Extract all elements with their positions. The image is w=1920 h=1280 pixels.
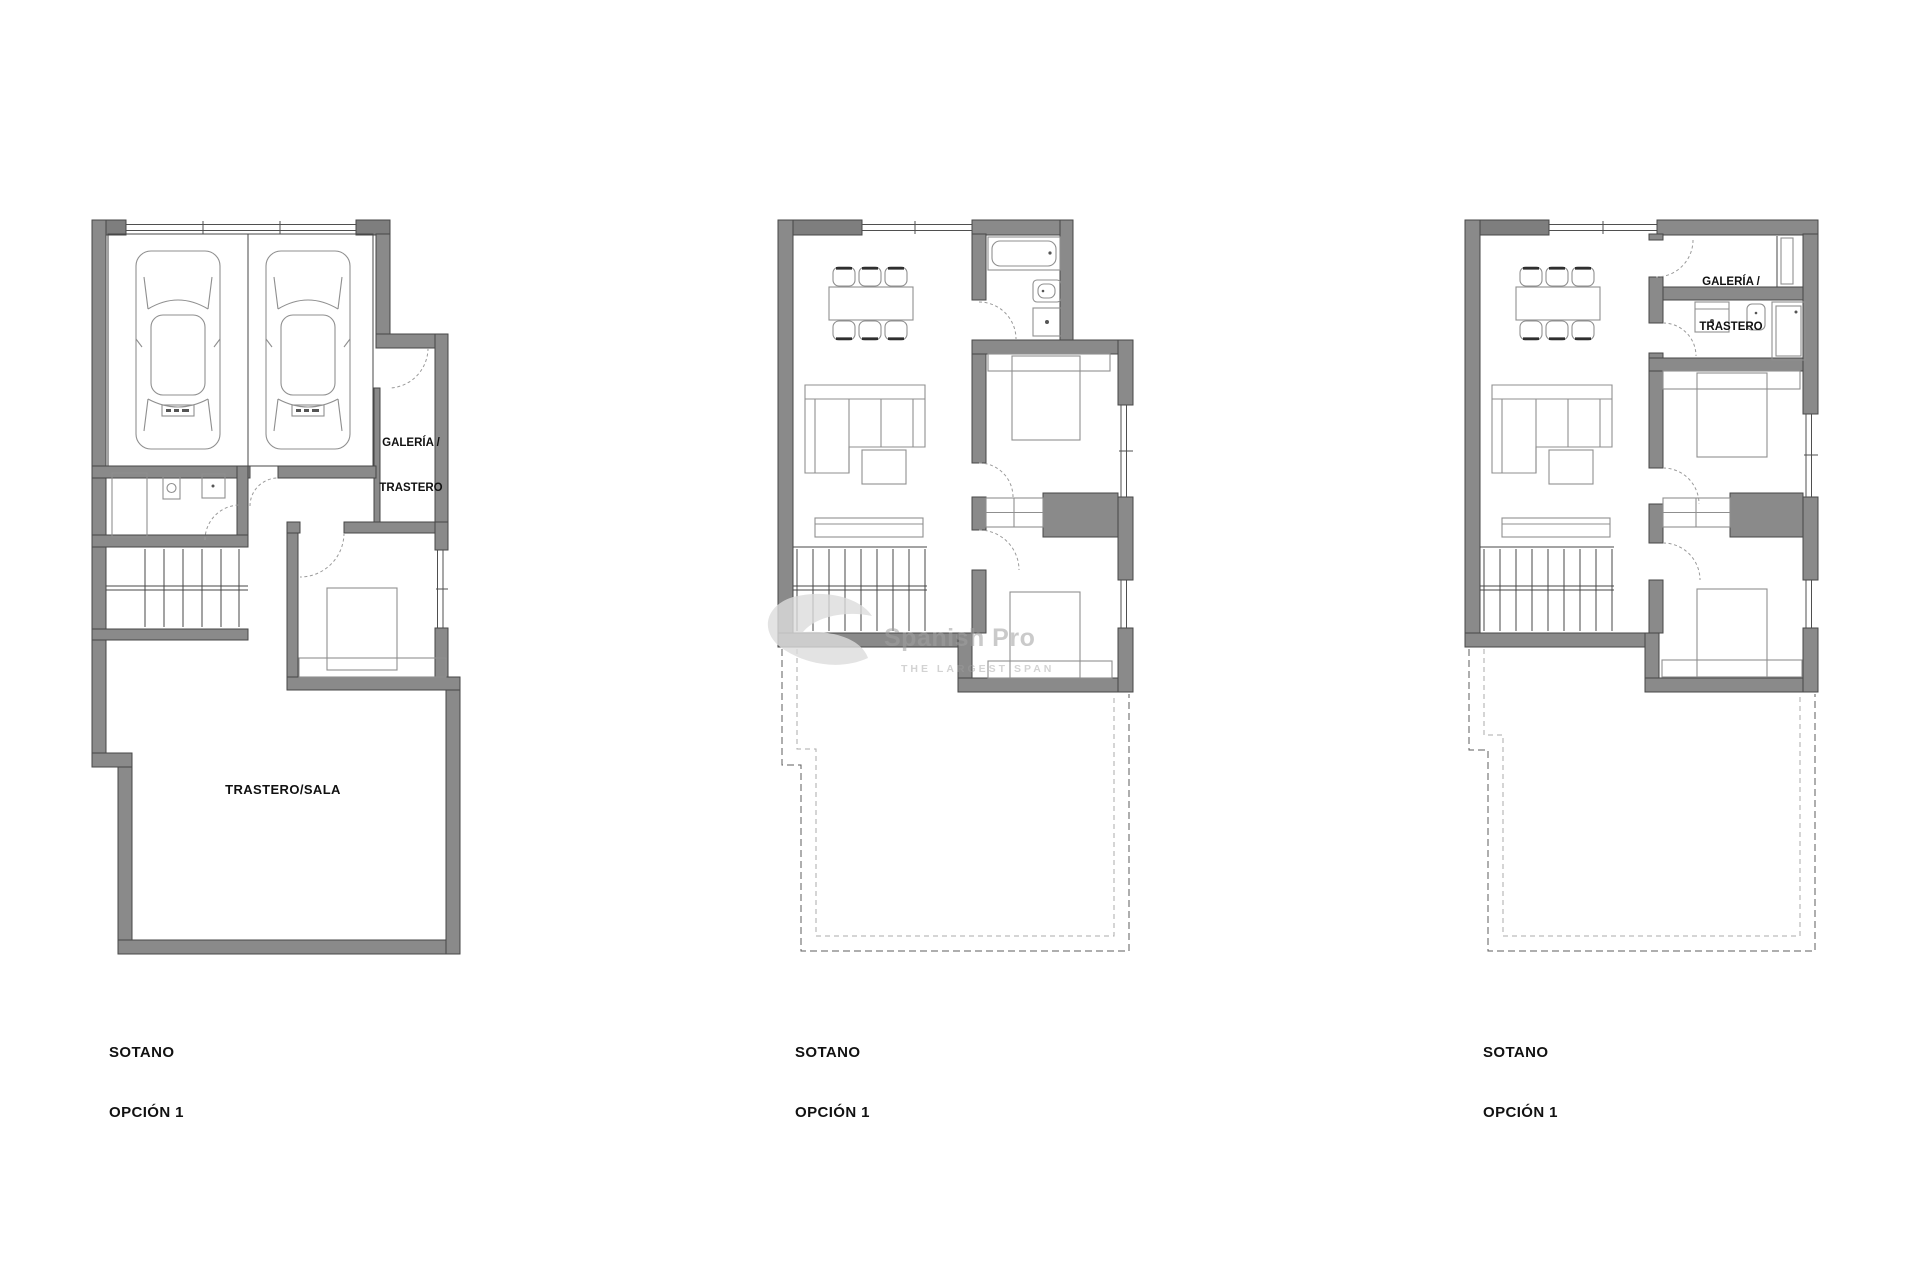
watermark-subtext: THE LARGEST SPAN xyxy=(901,663,1054,675)
sideboard-icon xyxy=(815,518,923,537)
stairs-icon xyxy=(106,547,248,627)
room-label-galeria-left: GALERÍA / TRASTERO xyxy=(367,406,455,511)
coffee-table-icon xyxy=(1549,450,1593,484)
bed-icon xyxy=(1663,371,1800,457)
room-label-galeria-right: GALERÍA / TRASTERO xyxy=(1686,245,1776,350)
toilet-icon xyxy=(1033,280,1061,302)
garage xyxy=(108,234,373,466)
dining-table-icon xyxy=(1516,267,1600,340)
room-label-line: GALERÍA / xyxy=(367,436,455,451)
room-label-line: TRASTERO xyxy=(1686,320,1776,335)
caption-line: OPCIÓN 1 xyxy=(109,1103,184,1123)
shower-icon xyxy=(1772,302,1805,360)
caption-line: OPCIÓN 1 xyxy=(795,1103,870,1123)
excavation-outline xyxy=(1469,649,1815,951)
excavation-outline xyxy=(782,649,1129,951)
floor-plan-left xyxy=(92,220,460,954)
car-icon xyxy=(266,251,350,449)
utility-room xyxy=(112,473,225,537)
bed-icon xyxy=(1662,589,1802,677)
wardrobe-icon xyxy=(986,498,1043,527)
caption-line: SOTANO xyxy=(1483,1043,1558,1063)
bathroom xyxy=(988,237,1061,336)
room-label-line: GALERÍA / xyxy=(1686,275,1776,290)
galeria-room xyxy=(1777,236,1793,287)
dining-table-icon xyxy=(829,267,913,340)
floor-plan-middle xyxy=(778,220,1133,951)
bed-icon xyxy=(299,588,446,677)
sofa-icon xyxy=(805,385,925,473)
walls xyxy=(92,220,460,954)
watermark-text: Spanish Pro xyxy=(884,624,1035,653)
stairs-icon xyxy=(1480,547,1614,631)
room-label-line: TRASTERO xyxy=(367,481,455,496)
room-label-trastero-sala: TRASTERO/SALA xyxy=(207,782,359,797)
bed-icon xyxy=(988,354,1110,440)
watermark-logo-icon xyxy=(768,594,872,665)
plan-caption-left: SOTANO OPCIÓN 1 xyxy=(109,1003,184,1143)
floorplan-sheet: GALERÍA / TRASTERO TRASTERO/SALA GALERÍA… xyxy=(0,0,1920,1280)
plan-caption-middle: SOTANO OPCIÓN 1 xyxy=(795,1003,870,1143)
caption-line: SOTANO xyxy=(109,1043,184,1063)
bedroom-window xyxy=(436,550,448,628)
coffee-table-icon xyxy=(862,450,906,484)
car-icon xyxy=(136,251,220,449)
wardrobe-icon xyxy=(1663,498,1730,527)
washer-icon xyxy=(1033,308,1061,336)
sofa-icon xyxy=(1492,385,1612,473)
sideboard-icon xyxy=(1502,518,1610,537)
caption-line: SOTANO xyxy=(795,1043,870,1063)
plan-caption-right: SOTANO OPCIÓN 1 xyxy=(1483,1003,1558,1143)
caption-line: OPCIÓN 1 xyxy=(1483,1103,1558,1123)
